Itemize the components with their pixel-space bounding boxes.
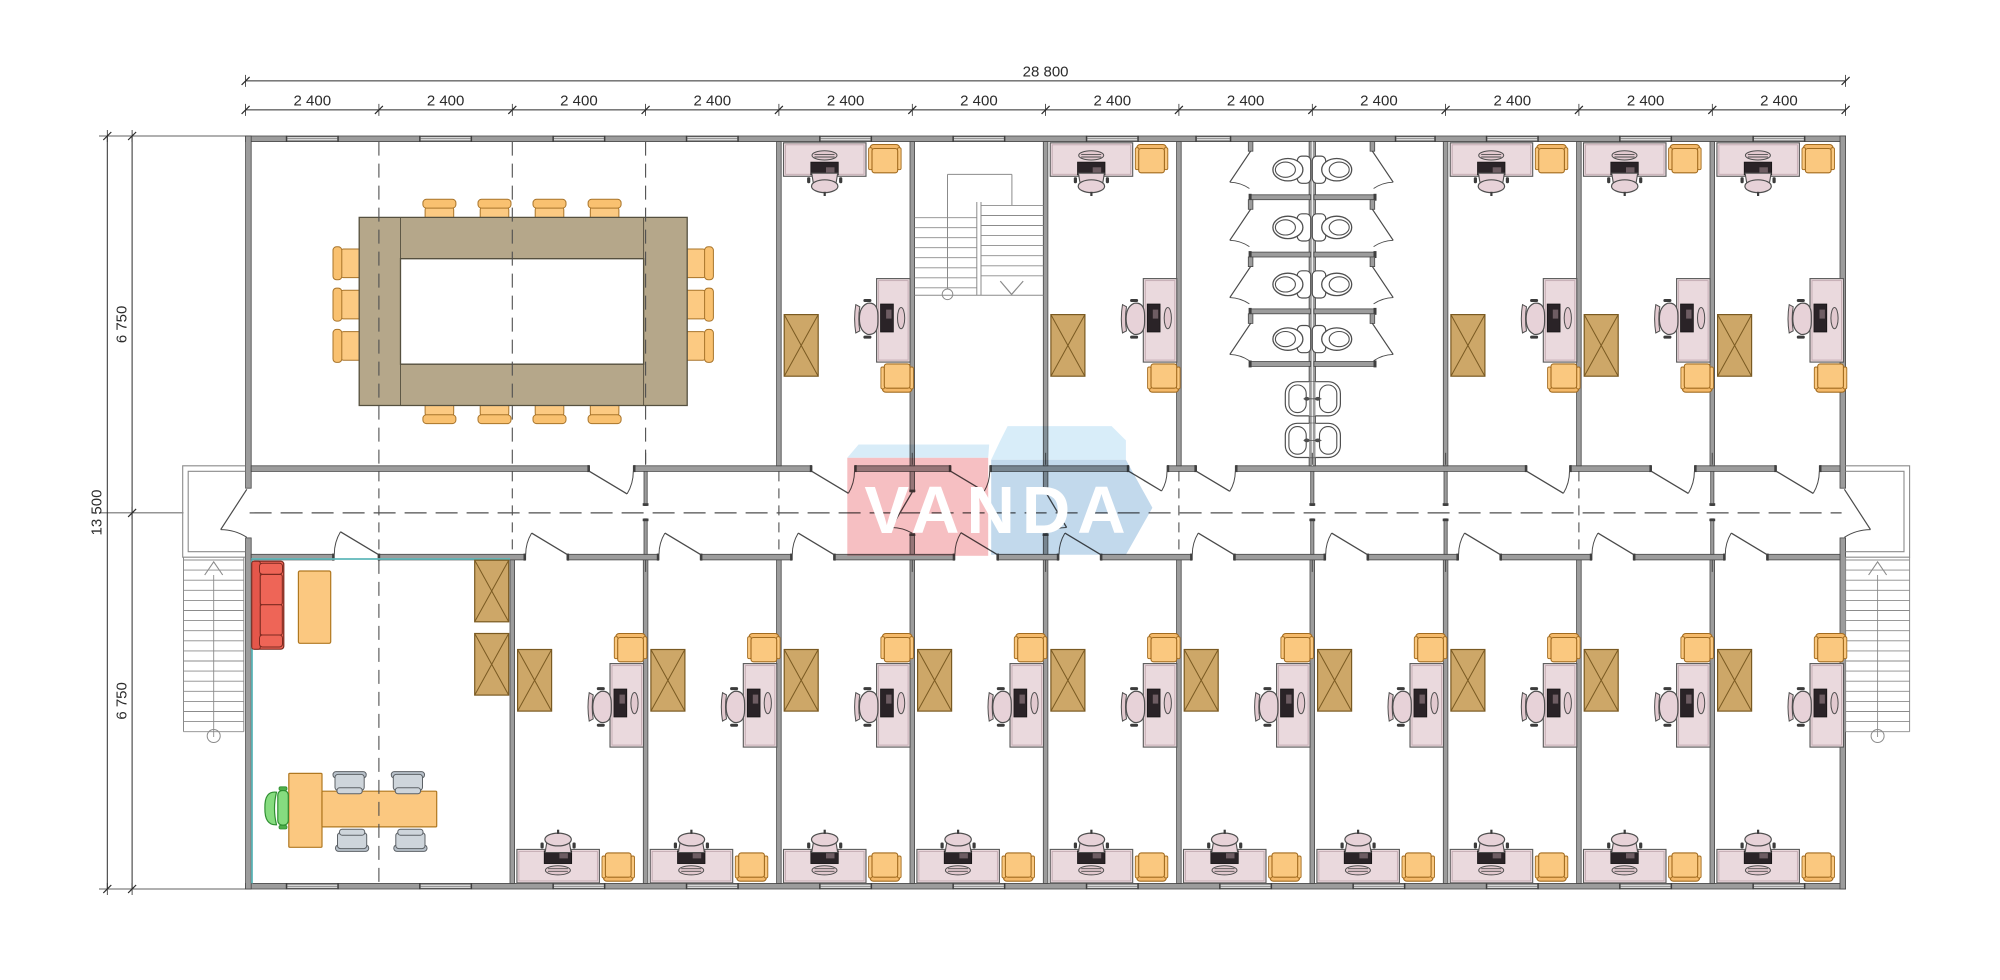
svg-text:2 400: 2 400 xyxy=(1227,93,1265,110)
svg-text:6 750: 6 750 xyxy=(113,306,130,344)
svg-text:2 400: 2 400 xyxy=(1760,93,1798,110)
svg-text:2 400: 2 400 xyxy=(1494,93,1532,110)
svg-text:6 750: 6 750 xyxy=(113,682,130,720)
svg-text:2 400: 2 400 xyxy=(1094,93,1132,110)
svg-text:2 400: 2 400 xyxy=(1627,93,1665,110)
svg-text:28 800: 28 800 xyxy=(1023,64,1069,81)
svg-text:2 400: 2 400 xyxy=(427,93,465,110)
svg-text:VANDA: VANDA xyxy=(864,473,1132,548)
svg-text:2 400: 2 400 xyxy=(560,93,598,110)
svg-text:2 400: 2 400 xyxy=(827,93,865,110)
svg-text:2 400: 2 400 xyxy=(694,93,732,110)
svg-text:2 400: 2 400 xyxy=(960,93,998,110)
svg-text:2 400: 2 400 xyxy=(294,93,332,110)
svg-text:2 400: 2 400 xyxy=(1360,93,1398,110)
